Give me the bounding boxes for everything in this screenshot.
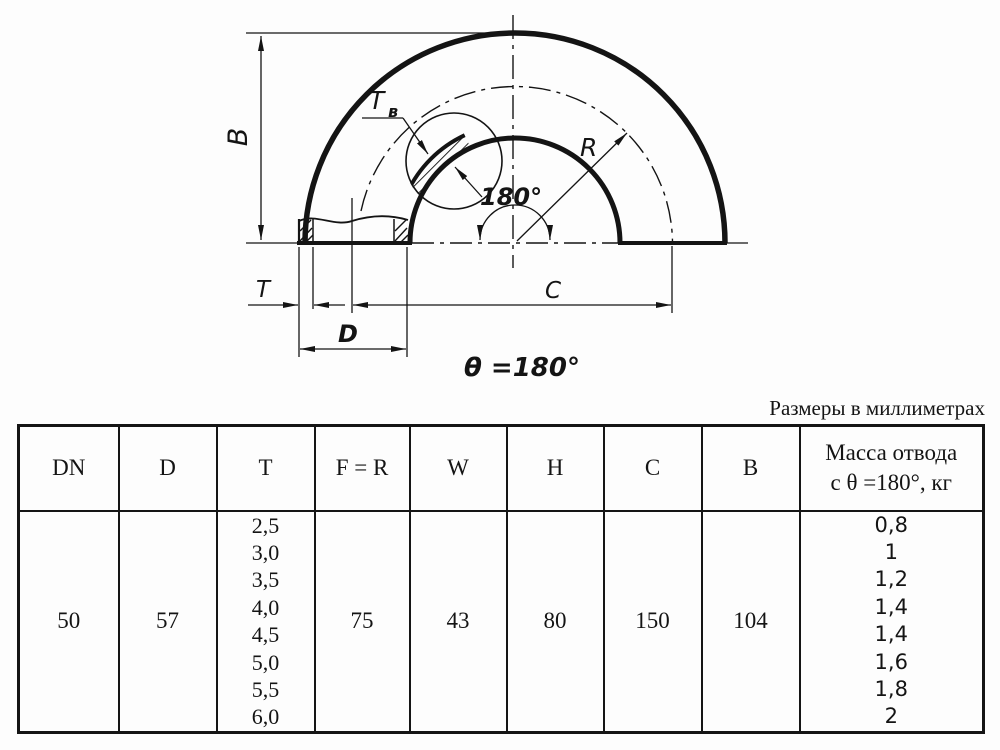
- header-f-r: F = R: [315, 426, 410, 511]
- header-mass-line1: Масса отвода: [801, 438, 983, 468]
- wall-hatching: [300, 220, 408, 243]
- break-wavy-line: [299, 216, 408, 222]
- mass-value: 1,8: [801, 676, 983, 703]
- page: B T в R 180° T C D θ =180° Размеры в мил…: [0, 0, 1000, 750]
- mass-value: 1,2: [801, 566, 983, 593]
- mass-value: 1,6: [801, 649, 983, 676]
- header-mass-line2: с θ =180°, кг: [801, 468, 983, 498]
- header-t: T: [217, 426, 315, 511]
- wall-thickness-arrow: [455, 167, 482, 197]
- label-angle-180: 180°: [480, 183, 542, 211]
- tv-leader: [362, 118, 428, 154]
- pipe-end-section: [299, 216, 408, 243]
- header-b: B: [702, 426, 800, 511]
- cell-b: 104: [702, 511, 800, 733]
- pipe-arcs: [305, 15, 725, 268]
- mass-values-stack: 0,8 1 1,2 1,4 1,4 1,6 1,8 2: [801, 512, 983, 731]
- label-Tv-subscript: в: [388, 102, 398, 121]
- cell-w: 43: [410, 511, 507, 733]
- label-B: B: [223, 128, 254, 147]
- elbow-technical-drawing: B T в R 180° T C D θ =180°: [0, 0, 1000, 400]
- label-Tv: T: [369, 86, 386, 115]
- wall-hatch-band: [407, 135, 470, 198]
- cell-h: 80: [507, 511, 604, 733]
- cell-d: 57: [119, 511, 217, 733]
- mass-value: 1: [801, 539, 983, 566]
- header-mass: Масса отвода с θ =180°, кг: [800, 426, 984, 511]
- cell-mass: 0,8 1 1,2 1,4 1,4 1,6 1,8 2: [800, 511, 984, 733]
- table-header-row: DN D T F = R W H C B Масса отвода с θ =1…: [19, 426, 984, 511]
- label-D: D: [338, 320, 358, 348]
- label-R: R: [580, 133, 597, 162]
- units-caption: Размеры в миллиметрах: [0, 396, 985, 421]
- t-value: 5,5: [218, 676, 314, 703]
- label-theta-180: θ =180°: [464, 353, 580, 383]
- b-dimension: [246, 33, 519, 240]
- t-values-stack: 2,5 3,0 3,5 4,0 4,5 5,0 5,5 6,0: [218, 512, 314, 731]
- t-value: 2,5: [218, 512, 314, 539]
- mass-value: 0,8: [801, 512, 983, 539]
- label-T: T: [256, 277, 272, 303]
- label-C: C: [545, 278, 561, 304]
- header-h: H: [507, 426, 604, 511]
- dimensions-table: DN D T F = R W H C B Масса отвода с θ =1…: [17, 424, 985, 734]
- cell-c: 150: [604, 511, 702, 733]
- t-value: 4,0: [218, 594, 314, 621]
- t-value: 5,0: [218, 649, 314, 676]
- header-d: D: [119, 426, 217, 511]
- cell-t: 2,5 3,0 3,5 4,0 4,5 5,0 5,5 6,0: [217, 511, 315, 733]
- cell-f-r: 75: [315, 511, 410, 733]
- header-dn: DN: [19, 426, 119, 511]
- header-w: W: [410, 426, 507, 511]
- cell-dn: 50: [19, 511, 119, 733]
- t-value: 6,0: [218, 703, 314, 730]
- t-value: 3,0: [218, 539, 314, 566]
- t-value: 4,5: [218, 621, 314, 648]
- table-data-row: 50 57 2,5 3,0 3,5 4,0 4,5 5,0 5,5 6,0 75…: [19, 511, 984, 733]
- mass-value: 1,4: [801, 594, 983, 621]
- mass-value: 2: [801, 703, 983, 730]
- t-value: 3,5: [218, 566, 314, 593]
- header-c: C: [604, 426, 702, 511]
- mass-value: 1,4: [801, 621, 983, 648]
